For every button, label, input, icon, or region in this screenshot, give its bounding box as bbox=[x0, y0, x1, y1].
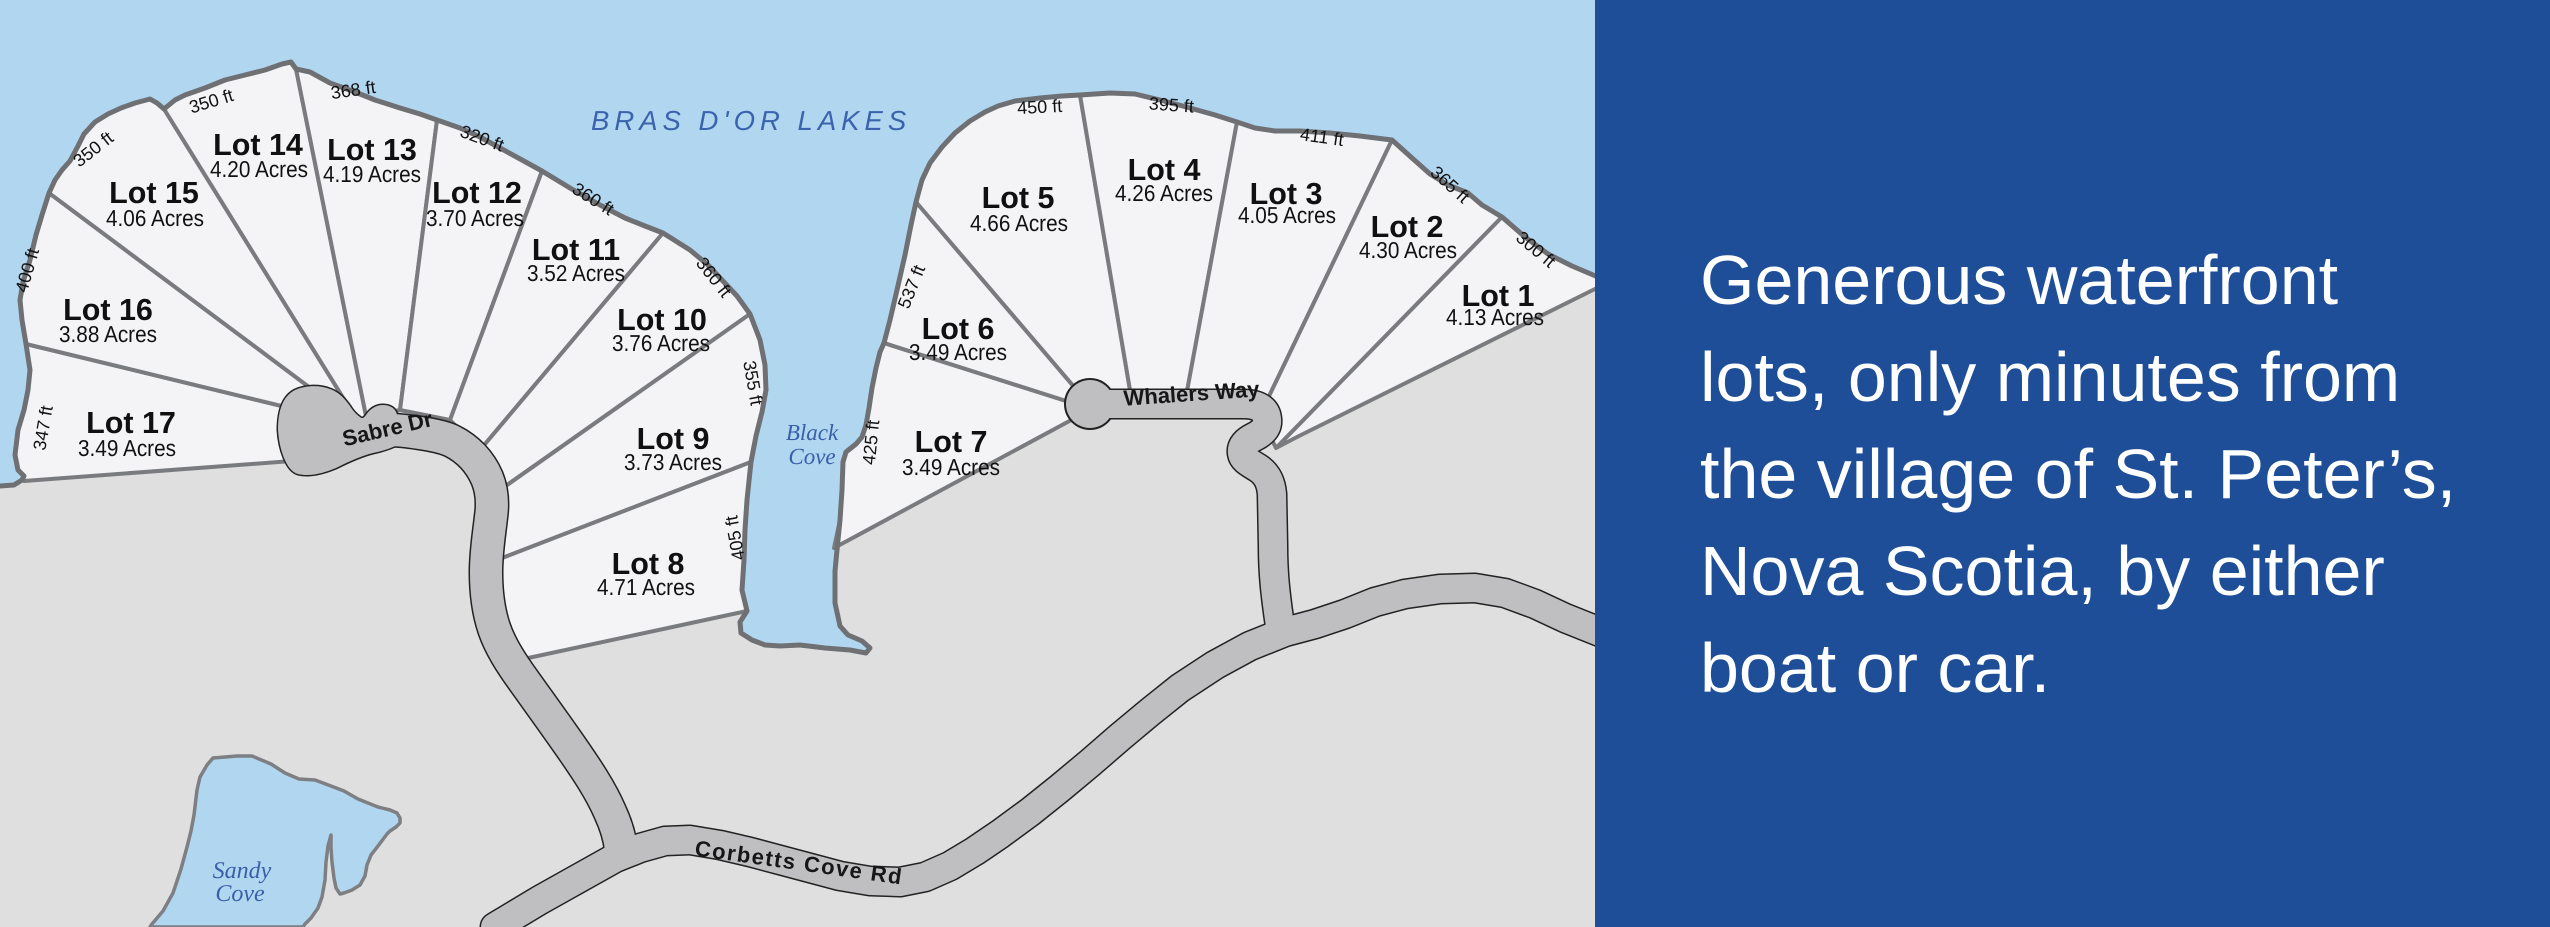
svg-text:3.49 Acres: 3.49 Acres bbox=[909, 339, 1007, 365]
svg-text:450 ft: 450 ft bbox=[1017, 96, 1063, 118]
svg-text:4.05 Acres: 4.05 Acres bbox=[1238, 202, 1336, 228]
svg-text:4.71 Acres: 4.71 Acres bbox=[597, 574, 695, 600]
svg-text:BRAS D'OR LAKES: BRAS D'OR LAKES bbox=[591, 105, 911, 136]
svg-text:3.88 Acres: 3.88 Acres bbox=[59, 321, 157, 347]
svg-text:395 ft: 395 ft bbox=[1148, 93, 1194, 116]
svg-text:3.52 Acres: 3.52 Acres bbox=[527, 260, 625, 286]
svg-text:4.26 Acres: 4.26 Acres bbox=[1115, 180, 1213, 206]
svg-text:Black: Black bbox=[786, 420, 839, 445]
svg-text:4.30 Acres: 4.30 Acres bbox=[1359, 237, 1457, 263]
svg-text:4.13 Acres: 4.13 Acres bbox=[1446, 304, 1544, 330]
svg-text:4.06 Acres: 4.06 Acres bbox=[106, 205, 204, 231]
svg-text:3.73 Acres: 3.73 Acres bbox=[624, 449, 722, 475]
svg-text:Cove: Cove bbox=[215, 881, 265, 907]
svg-text:4.20 Acres: 4.20 Acres bbox=[210, 156, 308, 182]
svg-text:3.49 Acres: 3.49 Acres bbox=[78, 435, 176, 461]
svg-text:4.66 Acres: 4.66 Acres bbox=[970, 210, 1068, 236]
svg-text:4.19 Acres: 4.19 Acres bbox=[323, 161, 421, 187]
svg-text:3.49 Acres: 3.49 Acres bbox=[902, 454, 1000, 480]
svg-text:3.70 Acres: 3.70 Acres bbox=[426, 205, 524, 231]
svg-text:3.76 Acres: 3.76 Acres bbox=[612, 330, 710, 356]
svg-text:Cove: Cove bbox=[788, 444, 835, 469]
